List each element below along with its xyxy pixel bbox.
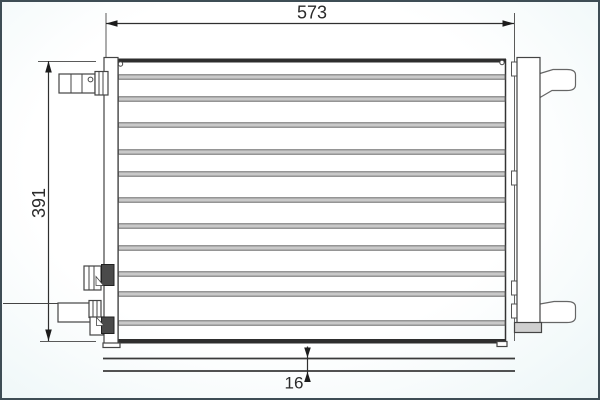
right-tank-bottom-cap — [515, 323, 542, 333]
tube-row — [119, 150, 506, 154]
tube-row — [119, 75, 506, 79]
core-top-edge — [117, 59, 506, 63]
thickness-profile — [103, 359, 515, 372]
fitting-top-left — [59, 72, 108, 96]
dim-depth: 16 — [285, 347, 311, 393]
left-tank — [103, 58, 120, 348]
right-tank — [515, 58, 576, 333]
condenser-technical-drawing: 573 391 — [2, 2, 598, 398]
dim-width-label: 573 — [297, 3, 327, 23]
tube-row — [119, 198, 506, 202]
core-tube-rows — [119, 75, 506, 325]
tube-row — [119, 292, 506, 296]
tube-row — [119, 321, 506, 325]
left-tank-foot — [103, 343, 120, 348]
dim-height-arrow-up — [45, 61, 52, 73]
dim-height-label: 391 — [29, 188, 49, 218]
fitting-top-port-hole — [88, 77, 93, 82]
dim-height-arrow-down — [45, 330, 52, 342]
tube-row — [119, 97, 506, 101]
tube-row — [119, 123, 506, 127]
dim-width: 573 — [106, 3, 515, 58]
dim-height: 391 — [29, 61, 96, 342]
right-tank-body — [517, 58, 540, 329]
dim-width-arrow-right — [503, 20, 515, 27]
fitting-top-collar — [95, 72, 108, 96]
tube-row — [119, 172, 506, 176]
core-pin-top-right — [500, 60, 504, 64]
top-right-bracket — [540, 70, 576, 98]
fitting-bottom-collar — [89, 301, 101, 318]
left-tank-body — [104, 58, 118, 345]
core-bottom-edge — [117, 339, 506, 344]
bottom-right-bracket — [540, 302, 576, 323]
core-pin-top-left — [118, 62, 122, 66]
core — [117, 59, 507, 347]
tube-row — [119, 246, 506, 250]
fitting-middle-collar — [84, 266, 101, 290]
fitting-bottom-left — [3, 301, 114, 336]
drawing-frame: 573 391 — [0, 0, 600, 400]
fitting-middle-block — [102, 265, 115, 286]
dim-width-arrow-left — [106, 20, 118, 27]
dim-depth-arrow-down — [304, 348, 311, 358]
dim-depth-label: 16 — [285, 374, 304, 393]
tube-row — [119, 272, 506, 276]
dim-depth-arrow-up — [304, 372, 311, 382]
tube-row — [119, 224, 506, 228]
core-bottom-right-foot — [497, 342, 507, 347]
